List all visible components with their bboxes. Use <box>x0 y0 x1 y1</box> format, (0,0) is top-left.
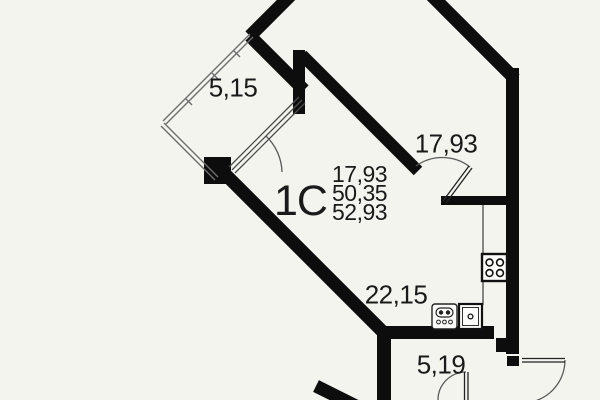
hallway-area-label: 5,19 <box>417 350 466 381</box>
balcony-area-label: 5,15 <box>209 73 258 104</box>
balcony-window-unit <box>229 97 305 173</box>
floor-plan: 5,15 17,93 22,15 5,19 1C 17,93 50,35 52,… <box>0 0 600 400</box>
kitchen-living-area-label: 22,15 <box>365 280 428 311</box>
living-room-door-leaf <box>443 166 469 201</box>
wall-bottom-stub <box>316 386 356 400</box>
wall-living-partition <box>302 55 418 171</box>
wall-sw-cap-block <box>204 157 231 184</box>
glazing-mullion <box>186 99 192 105</box>
wall-door-jamb-1 <box>496 338 512 352</box>
area-summary-total: 52,93 <box>332 203 387 222</box>
stove-icon <box>482 254 507 281</box>
wall-right-vertical <box>506 68 519 354</box>
glazing-mullion <box>234 51 240 57</box>
wall-door-jamb-2 <box>507 356 519 366</box>
wall-ne-exterior <box>428 0 515 79</box>
washing-machine-icon <box>432 304 457 329</box>
entrance-door <box>522 359 565 400</box>
unit-type-label: 1C <box>274 177 327 226</box>
entrance-door-arc <box>522 360 565 400</box>
area-summary: 17,93 50,35 52,93 <box>332 165 387 222</box>
wall-top-step-1 <box>250 0 294 36</box>
wall-kitchen-top <box>441 196 508 205</box>
sink-icon <box>459 304 482 329</box>
living-room-area-label: 17,93 <box>415 129 478 160</box>
balcony-door-arc <box>266 136 282 172</box>
